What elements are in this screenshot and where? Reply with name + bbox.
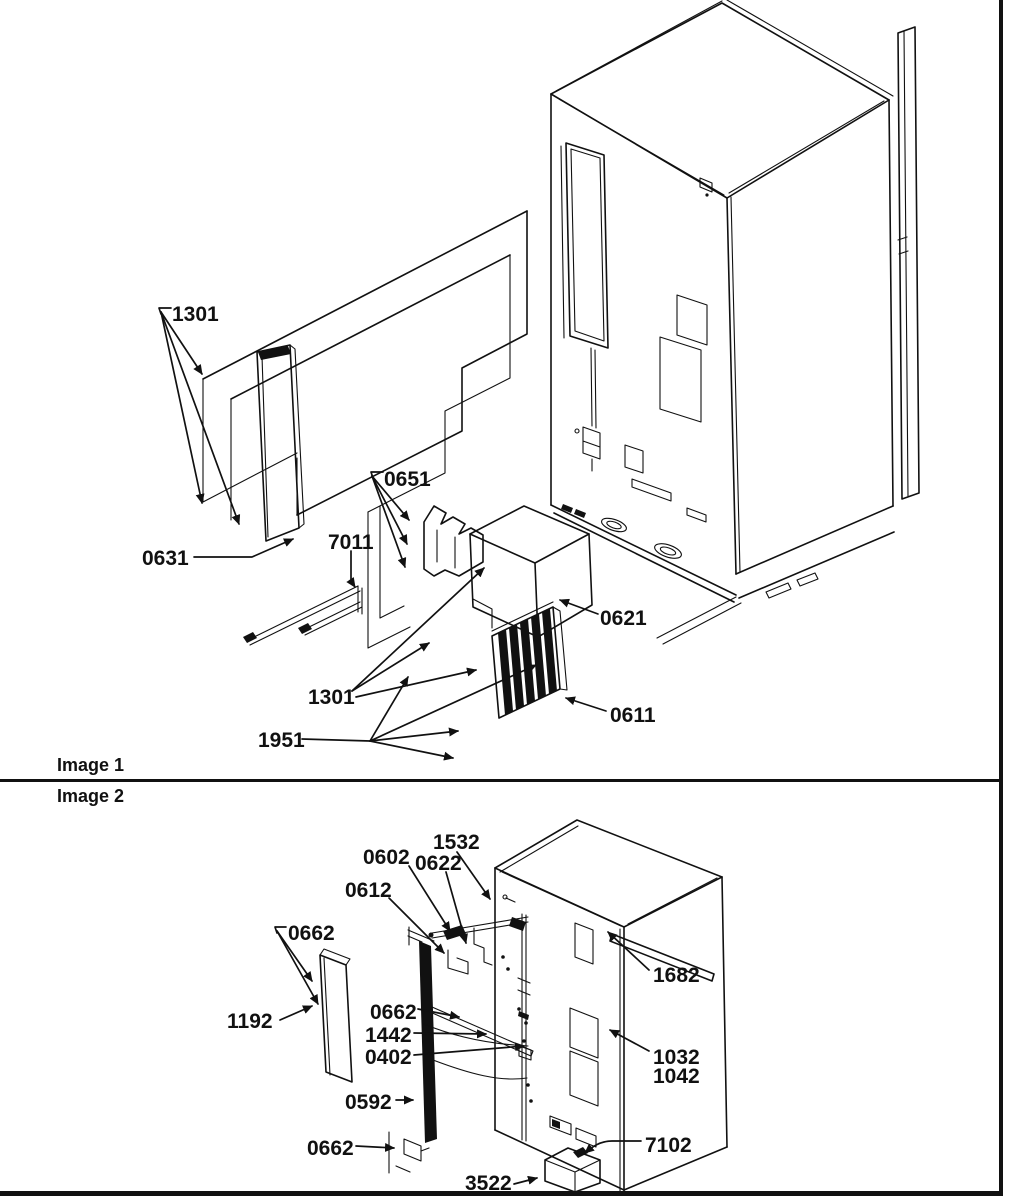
image2-title: Image 2 [57, 786, 124, 806]
image1-title: Image 1 [57, 755, 124, 775]
leader-1951-stem [302, 739, 370, 741]
image1-drawing [159, 0, 919, 758]
back-sheets [203, 211, 527, 648]
callout-0631: 0631 [142, 547, 189, 570]
callout-7102: 7102 [645, 1134, 692, 1157]
leader-1682 [608, 932, 649, 970]
leader-0662-bottom [356, 1146, 394, 1148]
leader-0631 [194, 539, 293, 557]
evaporator-panel [561, 143, 608, 471]
callout-1951: 1951 [258, 729, 305, 752]
tubing-7011 [243, 586, 362, 645]
leader-1532 [457, 852, 490, 899]
parts-diagram-page: Image 1 Image 2 1301 0631 7011 0651 0621… [0, 0, 1018, 1200]
callout-0662-mid: 0662 [370, 1001, 417, 1024]
leader-1192 [280, 1006, 312, 1020]
callout-1682: 1682 [653, 964, 700, 987]
leader-0612 [389, 898, 444, 953]
condenser-0611 [492, 602, 567, 718]
callout-1442: 1442 [365, 1024, 412, 1047]
door-panel-1192 [320, 949, 352, 1082]
callout-7011: 7011 [328, 531, 374, 554]
frame-borders [0, 0, 1003, 1196]
callout-1301-bottom: 1301 [308, 686, 355, 709]
leader-3522 [514, 1178, 537, 1184]
leader-1032-1042 [610, 1030, 649, 1051]
leader-0611 [566, 698, 606, 711]
callout-0651: 0651 [384, 468, 431, 491]
callout-0662-top: 0662 [288, 922, 335, 945]
side-panel-strip [898, 27, 919, 499]
callout-1301-top: 1301 [172, 303, 219, 326]
bottom-bracket-3522 [545, 1147, 600, 1192]
leader-0602 [409, 866, 450, 931]
callout-0602: 0602 [363, 846, 410, 869]
right-border [999, 0, 1003, 1196]
bracket-0651 [424, 506, 483, 576]
callout-0611: 0611 [610, 704, 656, 727]
callout-1532: 1532 [433, 831, 480, 854]
leader-7011 [351, 551, 355, 587]
cabinet-image2 [495, 820, 727, 1192]
callout-0592: 0592 [345, 1091, 392, 1114]
callout-3522: 3522 [465, 1172, 512, 1195]
callout-0662-bottom: 0662 [307, 1137, 354, 1160]
callout-0622: 0622 [415, 852, 462, 875]
callout-0402: 0402 [365, 1046, 412, 1069]
callout-1192: 1192 [227, 1010, 273, 1033]
leader-1442 [414, 1033, 486, 1034]
callout-0621: 0621 [600, 607, 647, 630]
callout-0612: 0612 [345, 879, 392, 902]
exploded-parts-diagram: Image 1 Image 2 1301 0631 7011 0651 0621… [0, 0, 1018, 1200]
image-divider-line [0, 779, 1003, 782]
filler-bar-0592 [408, 927, 437, 1143]
leader-7102 [585, 1141, 641, 1153]
callout-1042: 1042 [653, 1065, 700, 1088]
bottom-clip-0662 [389, 1132, 429, 1173]
mid-rail-and-drain [424, 1007, 533, 1056]
cabinet-image1 [551, 0, 894, 644]
